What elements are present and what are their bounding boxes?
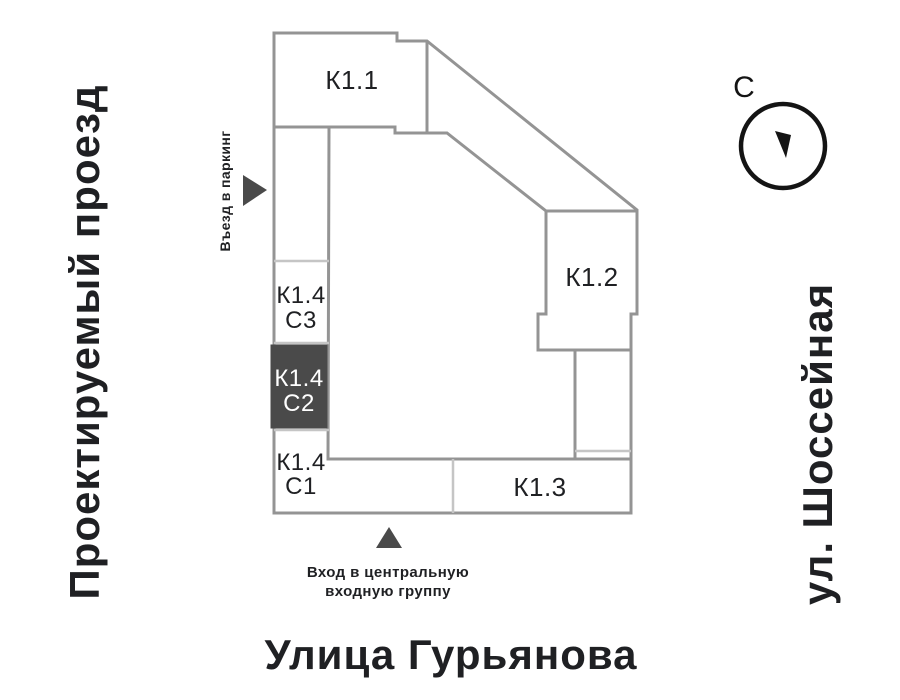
street-label-right: ул. Шоссейная xyxy=(794,283,841,605)
building-k11[interactable]: К1.1 xyxy=(325,65,378,95)
building-k14-c3[interactable]: К1.4 С3 xyxy=(276,282,325,334)
entrance-label-line2: входную группу xyxy=(325,583,451,600)
site-plan-page: К1.1 К1.2 К1.3 К1.4 С3 К1.4 С2 К1.4 С1 В… xyxy=(0,0,900,700)
master-plan-svg: К1.1 К1.2 К1.3 К1.4 С3 К1.4 С2 К1.4 С1 В… xyxy=(0,0,900,700)
building-label-k14c3-line1[interactable]: К1.4 xyxy=(276,282,325,309)
building-k13[interactable]: К1.3 xyxy=(513,472,566,502)
central-entrance-annotation: Вход в центральную входную группу xyxy=(307,527,469,600)
building-label-k11[interactable]: К1.1 xyxy=(325,65,378,95)
building-k12[interactable]: К1.2 xyxy=(565,262,618,292)
building-label-k14c1-line2[interactable]: С1 xyxy=(285,473,317,500)
parking-arrow-icon xyxy=(243,175,267,206)
street-label-left: Проектируемый проезд xyxy=(61,85,108,600)
building-k14-c2-selected[interactable]: К1.4 С2 xyxy=(271,345,328,429)
compass-needle-icon xyxy=(775,131,791,158)
building-label-k13[interactable]: К1.3 xyxy=(513,472,566,502)
building-label-k12[interactable]: К1.2 xyxy=(565,262,618,292)
entrance-arrow-icon xyxy=(376,527,402,548)
parking-entrance-label: Въезд в паркинг xyxy=(217,130,233,251)
compass: С xyxy=(733,71,825,188)
street-label-bottom: Улица Гурьянова xyxy=(265,631,638,678)
parking-entrance-annotation: Въезд в паркинг xyxy=(217,130,267,251)
building-label-k14c2-line1[interactable]: К1.4 xyxy=(274,365,323,392)
building-label-k14c3-line2[interactable]: С3 xyxy=(285,307,317,334)
courtyard-boundary xyxy=(328,127,575,459)
building-k14-c1[interactable]: К1.4 С1 xyxy=(276,449,325,500)
entrance-label-line1: Вход в центральную xyxy=(307,564,469,581)
building-label-k14c2-line2[interactable]: С2 xyxy=(283,390,315,417)
building-label-k14c1-line1[interactable]: К1.4 xyxy=(276,449,325,476)
compass-north-label: С xyxy=(733,71,755,104)
